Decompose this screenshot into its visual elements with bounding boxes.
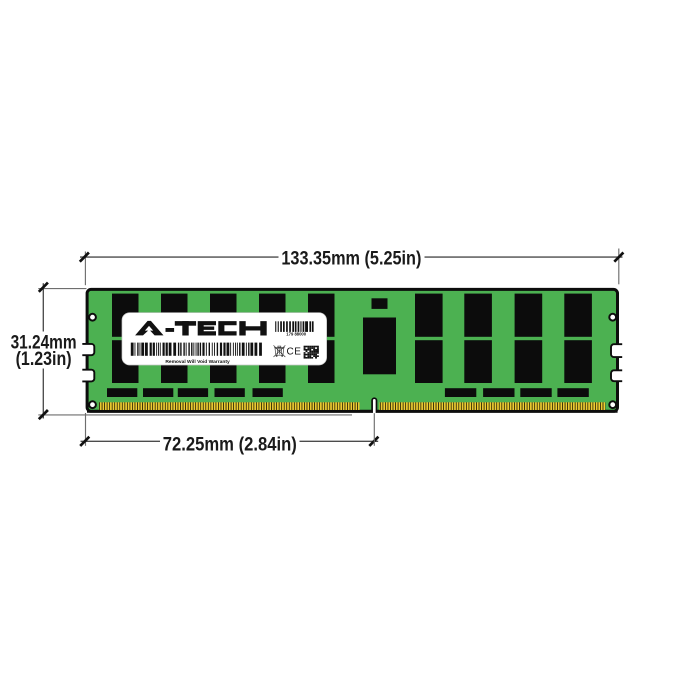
svg-text:Removal Will Void Warranty: Removal Will Void Warranty: [165, 359, 230, 365]
svg-text:133.35mm (5.25in): 133.35mm (5.25in): [281, 248, 421, 269]
svg-text:179 88000: 179 88000: [286, 332, 306, 337]
svg-text:CE: CE: [287, 347, 302, 358]
svg-text:72.25mm (2.84in): 72.25mm (2.84in): [163, 435, 297, 456]
svg-text:(1.23in): (1.23in): [16, 349, 72, 370]
